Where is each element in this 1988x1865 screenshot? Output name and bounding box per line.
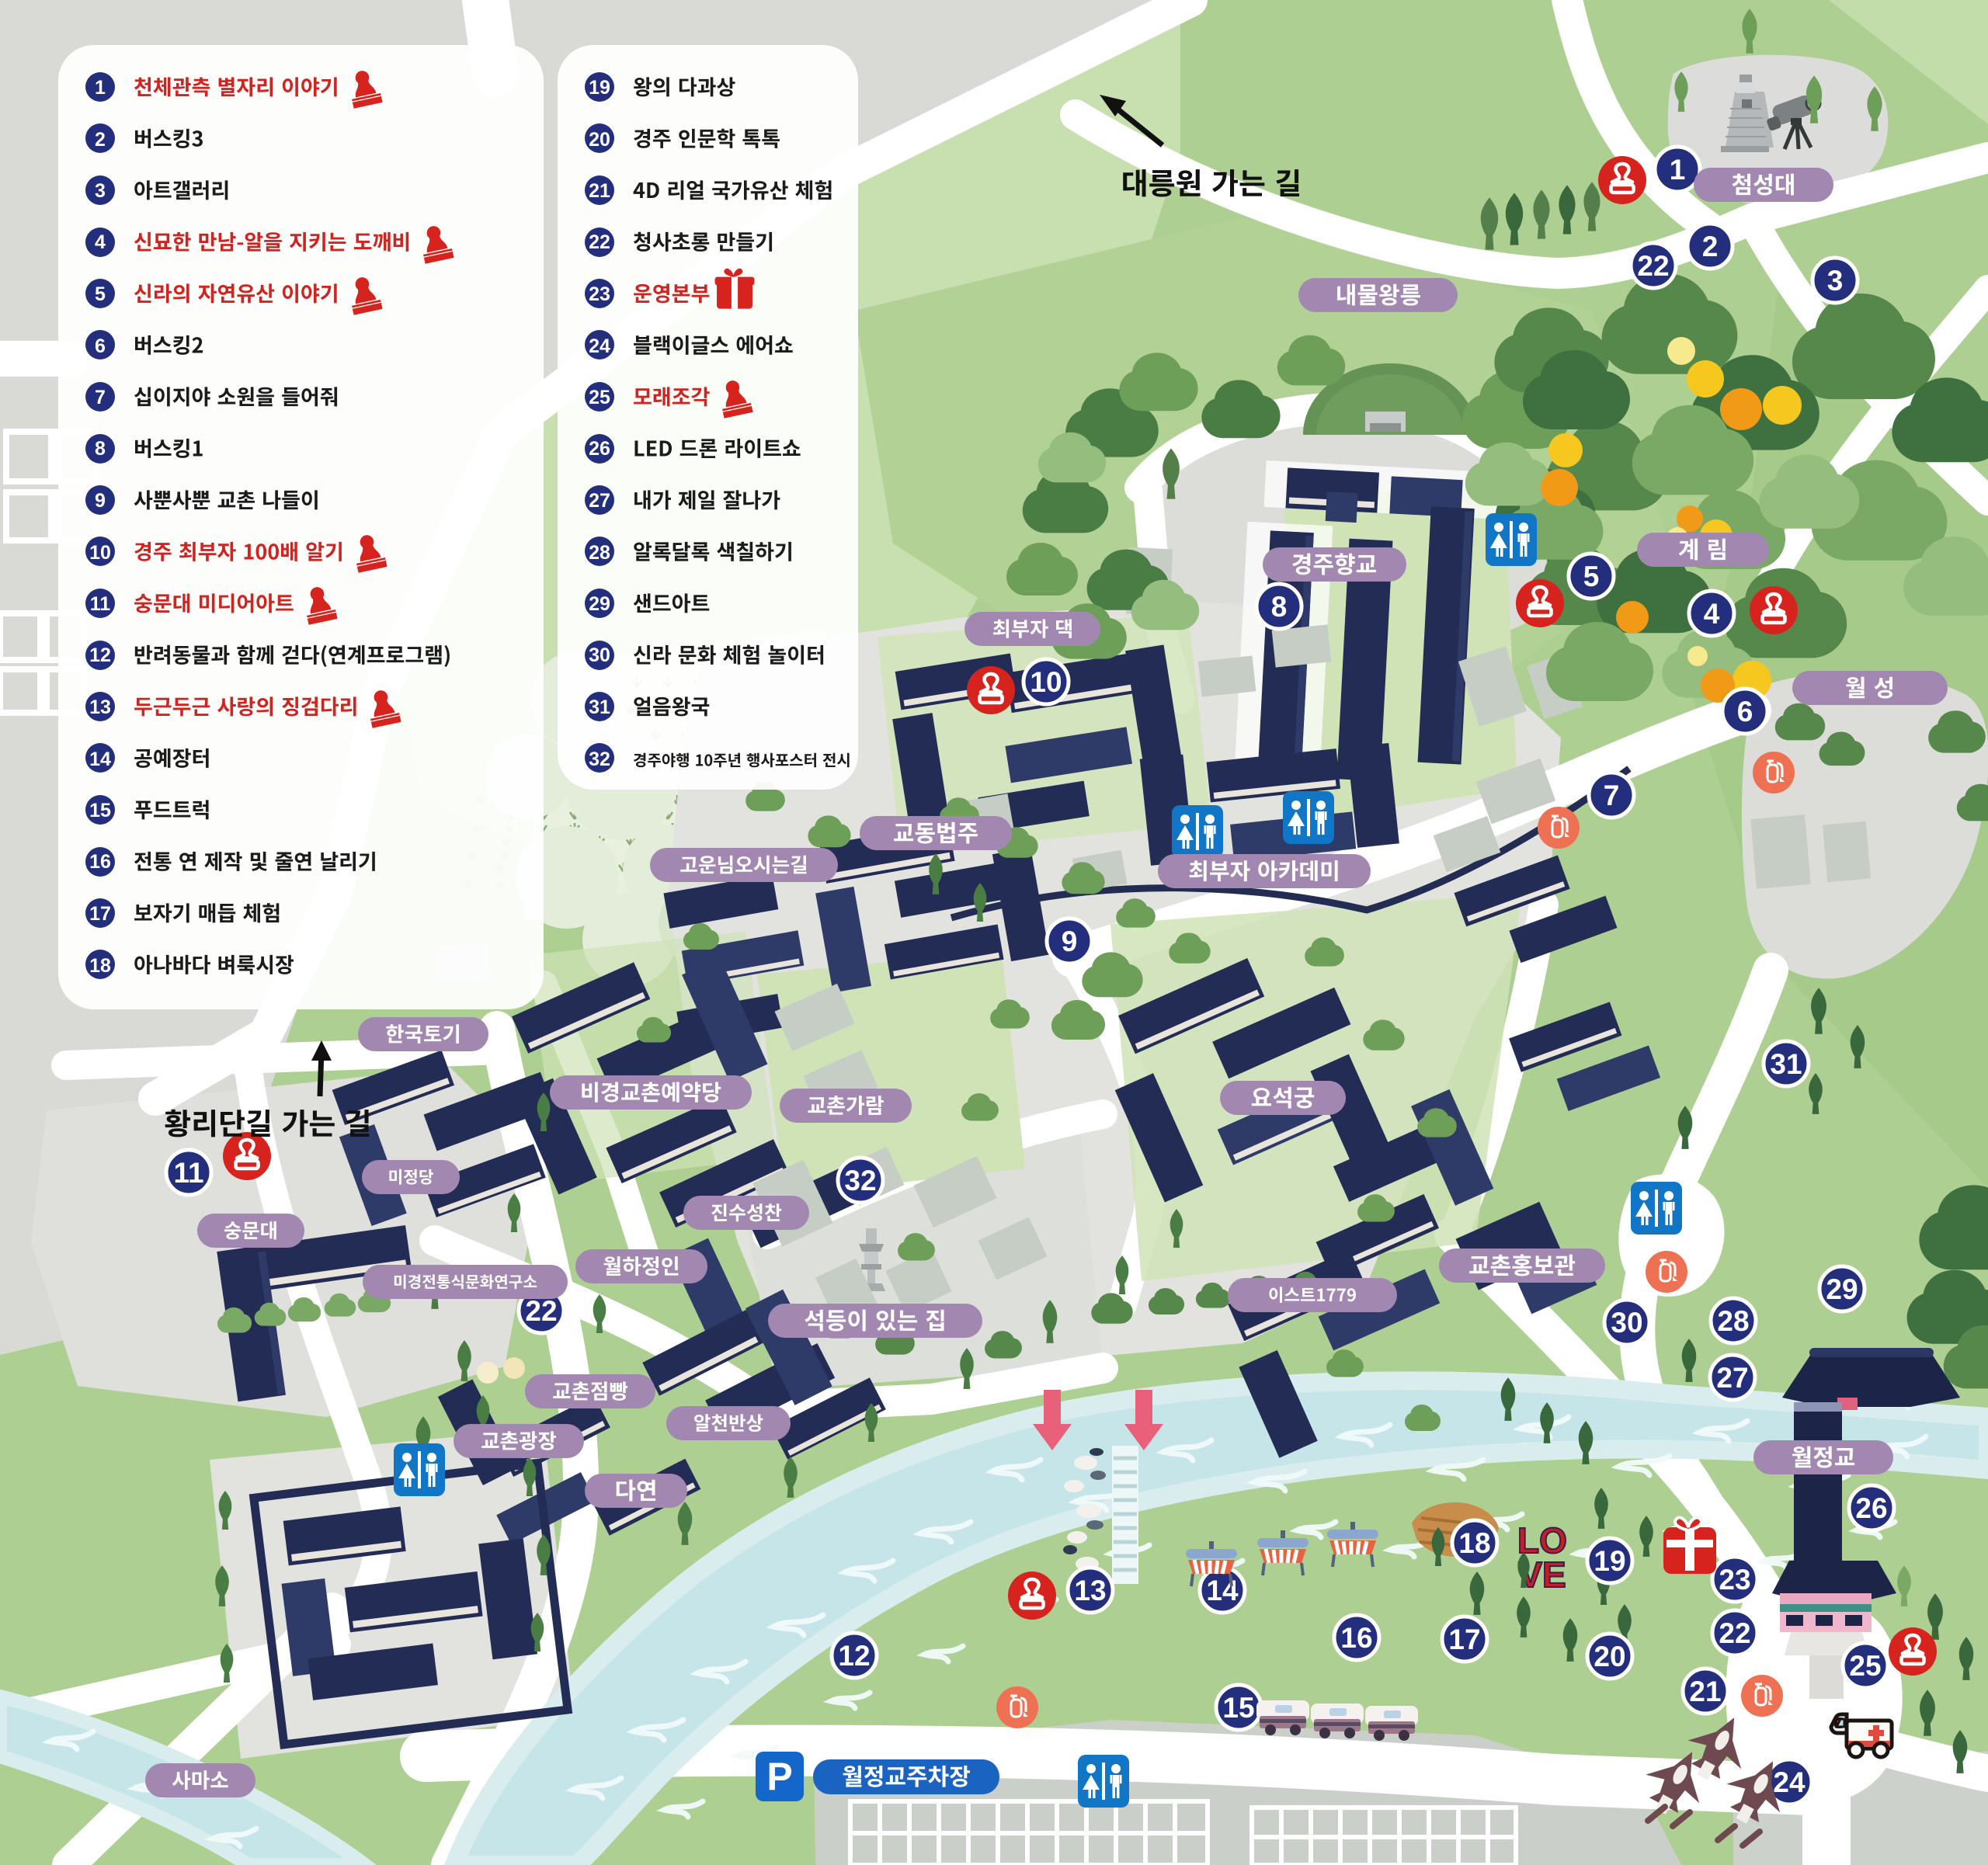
svg-text:10: 10	[89, 542, 111, 564]
svg-text:2: 2	[95, 129, 106, 151]
svg-text:7: 7	[95, 387, 106, 408]
svg-text:12: 12	[89, 644, 111, 666]
svg-text:28: 28	[1717, 1305, 1749, 1337]
svg-text:27: 27	[1716, 1362, 1748, 1394]
svg-text:16: 16	[1340, 1622, 1372, 1654]
svg-text:8: 8	[95, 438, 106, 460]
svg-text:7: 7	[1604, 780, 1620, 811]
svg-text:16: 16	[89, 851, 111, 873]
svg-text:21: 21	[589, 180, 610, 202]
svg-text:20: 20	[589, 129, 610, 151]
svg-text:20: 20	[1594, 1641, 1625, 1672]
svg-text:12: 12	[838, 1640, 870, 1672]
svg-text:32: 32	[844, 1165, 876, 1196]
svg-text:6: 6	[95, 335, 106, 357]
svg-text:10: 10	[1030, 666, 1062, 698]
svg-text:5: 5	[95, 283, 106, 305]
svg-text:27: 27	[589, 490, 610, 512]
svg-text:21: 21	[1689, 1676, 1721, 1707]
svg-text:29: 29	[589, 593, 610, 615]
svg-text:9: 9	[1062, 926, 1078, 957]
svg-text:30: 30	[1611, 1307, 1642, 1339]
svg-text:5: 5	[1583, 561, 1600, 592]
svg-text:11: 11	[173, 1157, 203, 1189]
svg-text:15: 15	[89, 800, 111, 821]
svg-text:3: 3	[95, 180, 106, 202]
svg-text:15: 15	[1222, 1692, 1254, 1724]
svg-text:29: 29	[1826, 1273, 1858, 1305]
svg-text:8: 8	[1271, 591, 1288, 623]
svg-text:31: 31	[1770, 1048, 1802, 1080]
svg-text:24: 24	[589, 335, 610, 357]
svg-text:26: 26	[1855, 1492, 1887, 1524]
svg-text:13: 13	[1074, 1575, 1106, 1606]
svg-text:P: P	[766, 1755, 792, 1798]
svg-text:11: 11	[90, 593, 111, 615]
svg-text:25: 25	[1849, 1650, 1881, 1682]
svg-text:31: 31	[589, 696, 610, 718]
svg-text:19: 19	[1594, 1545, 1625, 1577]
svg-text:4: 4	[1704, 598, 1720, 630]
svg-text:22: 22	[1637, 250, 1669, 282]
svg-text:28: 28	[589, 542, 610, 564]
svg-text:30: 30	[589, 644, 610, 666]
svg-text:24: 24	[1773, 1766, 1806, 1798]
svg-text:18: 18	[89, 955, 111, 977]
svg-text:23: 23	[1719, 1564, 1750, 1596]
svg-text:9: 9	[95, 490, 106, 512]
svg-text:1: 1	[95, 77, 106, 99]
svg-text:17: 17	[89, 903, 111, 925]
svg-text:17: 17	[1448, 1624, 1480, 1655]
svg-text:14: 14	[1206, 1575, 1239, 1606]
svg-text:6: 6	[1737, 696, 1753, 728]
svg-text:22: 22	[525, 1295, 557, 1327]
svg-text:13: 13	[89, 696, 111, 718]
svg-text:19: 19	[589, 77, 610, 99]
svg-text:18: 18	[1458, 1527, 1490, 1559]
svg-text:26: 26	[589, 438, 610, 460]
svg-text:3: 3	[1827, 265, 1844, 297]
svg-text:4: 4	[95, 231, 106, 253]
svg-text:22: 22	[1719, 1617, 1750, 1649]
svg-text:2: 2	[1702, 231, 1719, 262]
svg-text:1: 1	[1670, 154, 1686, 186]
svg-text:22: 22	[589, 231, 610, 253]
svg-text:32: 32	[589, 748, 610, 770]
svg-text:23: 23	[589, 283, 610, 305]
svg-text:14: 14	[89, 748, 111, 770]
svg-text:25: 25	[589, 387, 610, 408]
